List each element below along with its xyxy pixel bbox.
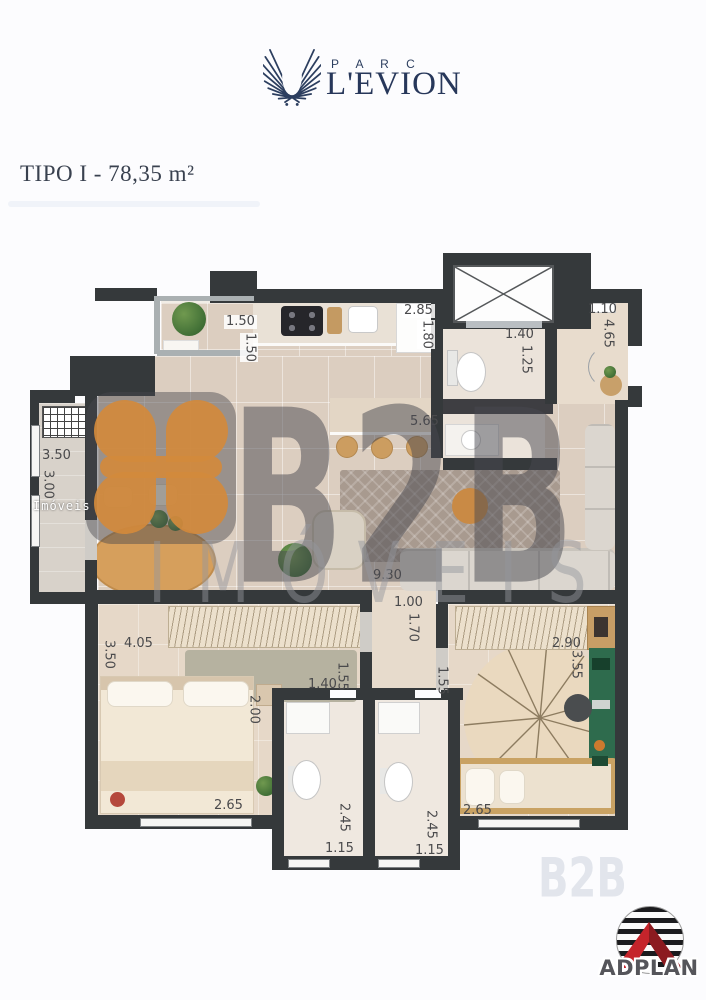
wall xyxy=(615,400,628,604)
unit-title: TIPO I - 78,35 m² xyxy=(20,161,194,187)
pillow xyxy=(499,770,525,804)
wall xyxy=(363,700,375,868)
logo-petal xyxy=(166,400,228,462)
logo-petal xyxy=(94,400,156,462)
desk-item xyxy=(592,756,608,766)
logo-petal xyxy=(94,472,156,534)
dimension-label: 2.65 xyxy=(214,799,243,813)
dimension-label: 1.15 xyxy=(415,844,444,858)
pillow xyxy=(465,768,495,806)
dimension-label: 3.50 xyxy=(101,640,115,669)
wall xyxy=(448,700,460,868)
decor-item xyxy=(110,792,125,807)
watermark-faint: B2B xyxy=(538,852,627,906)
dimension-label: 1.55 xyxy=(434,666,448,695)
dimension-label: 4.65 xyxy=(600,319,614,348)
floorplan-page: P A R C L'EVION TIPO I - 78,35 m² xyxy=(0,0,706,1000)
bed-throw xyxy=(101,761,253,791)
window xyxy=(154,296,160,354)
toilet-icon xyxy=(384,762,413,802)
kitchen-sink xyxy=(348,306,378,333)
dimension-label: 2.45 xyxy=(423,810,437,839)
window xyxy=(478,819,580,828)
dimension-label: 1.10 xyxy=(588,303,617,317)
dimension-label: 1.80 xyxy=(417,320,435,349)
dimension-label: 1.50 xyxy=(240,333,258,362)
dimension-label: 4.05 xyxy=(124,637,153,651)
double-bed xyxy=(100,676,254,814)
b2b-watermark-logo xyxy=(86,392,236,544)
window xyxy=(31,425,40,477)
pillow xyxy=(183,681,249,707)
laundry-tank xyxy=(42,406,88,438)
window xyxy=(160,296,254,301)
dimension-label: 1.15 xyxy=(325,842,354,856)
dimension-label: 2.45 xyxy=(336,803,350,832)
toilet-icon xyxy=(292,760,321,800)
adplan-logo: ADPLAN xyxy=(594,906,704,992)
window xyxy=(288,859,330,868)
wall xyxy=(70,356,155,396)
plant xyxy=(172,302,206,336)
window xyxy=(140,818,252,827)
dimension-label: 3.00 xyxy=(40,470,54,499)
desk-chair xyxy=(564,694,592,722)
door-swing-arc xyxy=(588,346,630,388)
watermark-small: Imóveis xyxy=(33,499,91,513)
brand-name: L'EVION xyxy=(326,66,462,103)
watermark-subtext: IMÓVEIS xyxy=(148,532,617,616)
window xyxy=(378,859,420,868)
desk-item xyxy=(594,740,605,751)
wall xyxy=(272,700,284,868)
dimension-label: 2.00 xyxy=(246,695,260,724)
wall xyxy=(85,604,98,829)
dimension-label: 1.40 xyxy=(505,328,534,342)
cutting-board xyxy=(327,307,342,334)
bathroom-sink xyxy=(286,702,330,734)
dimension-label: 3.50 xyxy=(42,449,71,463)
dimension-label: 1.55 xyxy=(334,662,348,691)
desk-item xyxy=(592,658,610,670)
elevator xyxy=(453,265,554,323)
pillow xyxy=(107,681,173,707)
divider xyxy=(8,201,260,207)
desk-item xyxy=(592,700,610,709)
dimension-label: 1.50 xyxy=(224,315,257,329)
wall xyxy=(253,289,443,303)
dimension-label: 2.65 xyxy=(463,804,492,818)
bathroom-sink xyxy=(378,702,420,734)
adplan-text: ADPLAN xyxy=(594,956,704,980)
dimension-label: 3.55 xyxy=(568,650,582,679)
dimension-label: 1.40 xyxy=(308,678,337,692)
wing-logo-icon xyxy=(263,44,321,108)
cooktop-icon xyxy=(281,306,323,336)
wall xyxy=(615,604,628,830)
wall xyxy=(95,288,157,301)
dimension-label: 2.85 xyxy=(402,304,435,318)
entry-door-opening xyxy=(628,346,642,386)
logo-bar xyxy=(100,456,222,478)
